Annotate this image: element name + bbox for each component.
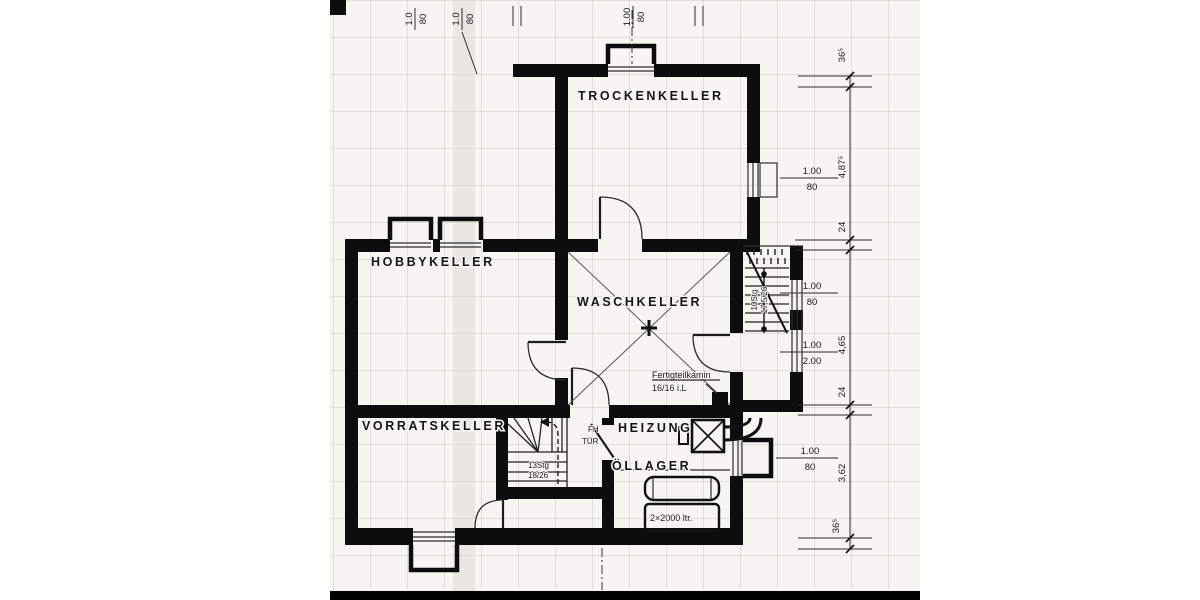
- svg-text:1.0: 1.0: [404, 12, 415, 25]
- interior-stair-label-line2: 18/26: [528, 471, 549, 480]
- dim-chain-4: 24: [837, 387, 848, 398]
- svg-text:1.00: 1.00: [803, 281, 822, 292]
- dim-chain-0: 36⁵: [837, 48, 848, 63]
- svg-text:2.00: 2.00: [803, 356, 822, 367]
- dim-chain-3: 4,65: [837, 336, 848, 355]
- exterior-stair-label-line1: 10Stg: [750, 290, 759, 311]
- room-label-vorratskeller: VORRATSKELLER: [362, 419, 506, 433]
- svg-text:1.00: 1.00: [803, 340, 822, 351]
- room-label-waschkeller: WASCHKELLER: [577, 295, 702, 309]
- floor-plan-screenshot: 10Stg 17,5/26 13Stg 18/26: [0, 0, 1200, 600]
- dim-chain-6: 36⁵: [831, 519, 842, 534]
- svg-text:80: 80: [807, 182, 818, 193]
- svg-text:80: 80: [418, 14, 429, 25]
- dim-chain-5: 3,62: [837, 464, 848, 483]
- svg-text:80: 80: [807, 297, 818, 308]
- svg-text:80: 80: [465, 14, 476, 25]
- bottom-border-bar: [330, 591, 920, 600]
- room-label-hobbykeller: HOBBYKELLER: [371, 255, 495, 269]
- room-label-oellager: ÖLLAGER: [612, 458, 691, 473]
- dim-chain-2: 24: [837, 222, 848, 233]
- chimney-block: [712, 392, 728, 405]
- room-label-heizung: HEIZUNG: [618, 421, 692, 435]
- tank-capacity-label: 2×2000 ltr.: [650, 513, 692, 523]
- floor-plan-canvas: 10Stg 17,5/26 13Stg 18/26: [0, 0, 1200, 600]
- svg-text:80: 80: [636, 12, 647, 23]
- chimney-label-line1: Fertigteilkamin: [652, 370, 711, 380]
- svg-text:1.00: 1.00: [622, 8, 633, 27]
- interior-stair-label-line1: 13Stg: [528, 461, 549, 470]
- scan-corner-mark: [330, 0, 346, 15]
- svg-text:1.00: 1.00: [801, 446, 820, 457]
- svg-text:1.0: 1.0: [451, 12, 462, 25]
- room-label-trockenkeller: TROCKENKELLER: [578, 89, 724, 103]
- fire-door-label-line1: FH: [588, 425, 599, 434]
- svg-text:1.00: 1.00: [803, 166, 822, 177]
- fire-door-label-line2: TÜR: [582, 437, 599, 446]
- dim-chain-1: 4,87⁵: [837, 156, 848, 178]
- exterior-stair-label-line2: 17,5/26: [760, 286, 769, 313]
- scan-smudge-band: [453, 0, 475, 600]
- chimney-label-line2: 16/16 i.L: [652, 383, 687, 393]
- svg-text:80: 80: [805, 462, 816, 473]
